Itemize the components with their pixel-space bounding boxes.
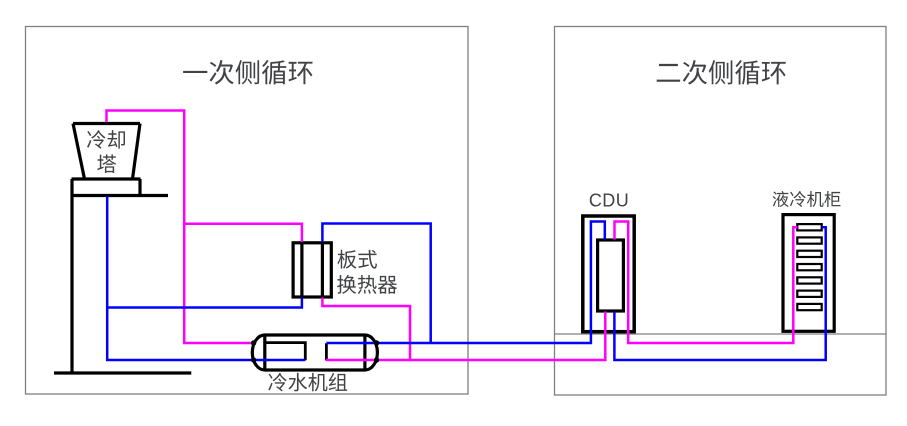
svg-text:CDU: CDU [589, 190, 629, 210]
